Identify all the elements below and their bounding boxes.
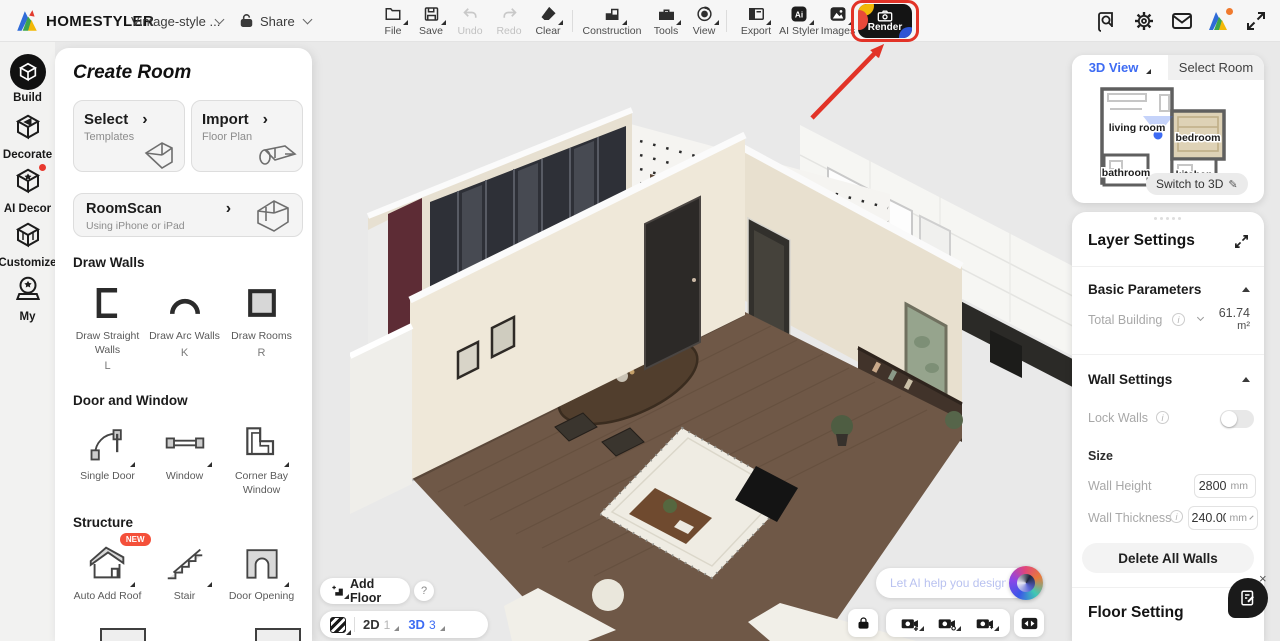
redo-icon: [498, 4, 520, 24]
tab-3d-view[interactable]: 3D View: [1072, 55, 1168, 80]
camera-ai-icon: [976, 616, 995, 631]
build-icon: [10, 54, 46, 90]
images-icon: [827, 4, 849, 24]
delete-all-walls-button[interactable]: Delete All Walls: [1082, 543, 1254, 573]
wall-height-input-box[interactable]: mm: [1194, 474, 1256, 498]
cutoff-item: [100, 628, 146, 641]
chevron-right-icon: ›: [226, 200, 231, 217]
camera-add-button[interactable]: [901, 616, 920, 631]
single-door-icon: [85, 420, 131, 466]
create-room-panel: Create Room Select› Templates Import› Fl…: [55, 48, 312, 641]
room-label-bathroom[interactable]: bathroom: [1102, 167, 1150, 179]
import-floorplan-card[interactable]: Import› Floor Plan: [191, 100, 303, 172]
homestyler-logo-icon[interactable]: [14, 8, 40, 34]
toolbar-save-button[interactable]: Save: [411, 4, 451, 37]
project-name[interactable]: Vintage-style ...: [131, 14, 220, 29]
floor-setting-header[interactable]: Floor Setting: [1088, 604, 1184, 622]
rail-item-decorate[interactable]: Decorate: [0, 112, 55, 161]
lock-view-button[interactable]: [848, 609, 878, 637]
ai-decor-badge: [39, 164, 46, 171]
info-icon[interactable]: i: [1156, 411, 1169, 424]
homestyler-app: HOMESTYLER Vintage-style ... Share File …: [0, 0, 1280, 641]
rail-item-my[interactable]: My: [0, 274, 55, 323]
construction-icon: [601, 4, 623, 24]
camera-settings-button[interactable]: [938, 616, 957, 631]
share-chevron-icon[interactable]: [303, 15, 313, 25]
left-rail: Build Decorate AI Decor Customize M: [0, 42, 55, 641]
settings-gear-icon[interactable]: [1132, 9, 1156, 33]
file-icon: [382, 4, 404, 24]
tab-3d[interactable]: 3D 3: [408, 617, 435, 632]
wall-height-unit: mm: [1231, 480, 1249, 492]
fit-view-icon: [1021, 616, 1038, 631]
close-icon[interactable]: ×: [1259, 571, 1267, 586]
ai-assistant-icon[interactable]: [1009, 566, 1043, 600]
info-icon[interactable]: i: [1172, 313, 1185, 326]
add-floor-button[interactable]: Add Floor: [320, 578, 410, 604]
wall-thickness-unit: mm: [1230, 512, 1248, 524]
add-floor-help-button[interactable]: ?: [414, 581, 434, 601]
room-square-icon: [239, 280, 285, 326]
total-building-unit: m²: [1200, 320, 1250, 332]
hallway-wall: [350, 328, 412, 514]
tool-single-door[interactable]: Single Door: [69, 420, 146, 484]
toolbar-clear-button[interactable]: Clear: [528, 4, 568, 37]
toolbar-redo-button[interactable]: Redo: [489, 4, 529, 37]
arc-wall-icon: [162, 280, 208, 326]
rail-item-customize[interactable]: Customize: [0, 220, 55, 269]
window-icon: [162, 420, 208, 466]
toolbar-ai-styler-button[interactable]: Ai AI Styler: [776, 4, 822, 37]
help-search-icon[interactable]: [1094, 9, 1118, 33]
chevron-right-icon: ›: [142, 111, 147, 128]
panel-title: Create Room: [73, 62, 191, 84]
templates-icon: [138, 135, 180, 169]
eraser-icon: [537, 4, 559, 24]
lock-icon: [856, 615, 871, 631]
tool-door-opening[interactable]: Door Opening: [223, 540, 300, 604]
ai-styler-icon: Ai: [788, 4, 810, 24]
roomscan-house-icon: [248, 195, 296, 233]
view-mode-switcher: 2D 1 3D 3: [320, 611, 488, 638]
tools-icon: [655, 4, 677, 24]
wall-height-input[interactable]: [1183, 479, 1227, 493]
add-floor-icon: [330, 584, 344, 598]
basic-parameters-header[interactable]: Basic Parameters: [1088, 282, 1201, 297]
straight-wall-icon: [85, 280, 131, 326]
fit-view-button[interactable]: [1014, 609, 1044, 637]
wall-settings-header[interactable]: Wall Settings: [1088, 372, 1172, 387]
tool-stair[interactable]: Stair: [146, 540, 223, 604]
rail-item-build[interactable]: Build: [0, 54, 55, 104]
chevron-right-icon: ›: [263, 111, 268, 128]
switch-to-3d-button[interactable]: Switch to 3D ✎: [1146, 173, 1248, 195]
toolbar-view-button[interactable]: View: [684, 4, 724, 37]
rail-item-ai-decor[interactable]: AI Decor: [0, 166, 55, 215]
tool-auto-add-roof[interactable]: NEW Auto Add Roof: [69, 540, 146, 604]
interior-door: [645, 197, 700, 369]
tool-draw-straight-walls[interactable]: Draw Straight Walls L: [69, 280, 146, 372]
view-icon: [693, 4, 715, 24]
notification-dot: [1226, 8, 1233, 15]
collapse-icon[interactable]: [1242, 287, 1250, 292]
thickness-dropdown-icon[interactable]: [1249, 515, 1253, 519]
note-pencil-icon: [1239, 589, 1257, 607]
camera-add-icon: [901, 616, 920, 631]
toolbar-file-button[interactable]: File: [373, 4, 413, 37]
info-icon[interactable]: i: [1170, 510, 1183, 523]
auto-roof-icon: NEW: [85, 540, 131, 586]
section-door-window: Door and Window: [73, 393, 188, 408]
total-building-label: Total Building: [1088, 313, 1162, 327]
camera-ai-button[interactable]: [976, 616, 995, 631]
fullscreen-icon[interactable]: [1244, 9, 1268, 33]
export-icon: [745, 4, 767, 24]
roomscan-card[interactable]: RoomScan› Using iPhone or iPad: [73, 193, 303, 237]
tab-2d[interactable]: 2D 1: [363, 617, 390, 632]
room-label-bedroom[interactable]: bedroom: [1176, 132, 1221, 144]
layer-settings-title: Layer Settings: [1088, 232, 1195, 250]
camera-settings-icon: [938, 616, 957, 631]
toolbar-render-button[interactable]: Render: [858, 4, 912, 38]
drag-handle[interactable]: [1154, 217, 1182, 220]
door-opening-icon: [239, 540, 285, 586]
toolbar-export-button[interactable]: Export: [736, 4, 776, 37]
lock-walls-label: Lock Walls: [1088, 411, 1148, 425]
toolbar-undo-button[interactable]: Undo: [450, 4, 490, 37]
undo-icon: [459, 4, 481, 24]
share-button[interactable]: Share: [260, 14, 295, 29]
save-icon: [420, 4, 442, 24]
lock-walls-toggle[interactable]: [1220, 410, 1254, 428]
mail-icon[interactable]: [1170, 9, 1194, 33]
cutoff-item: [255, 628, 301, 641]
toolbar-separator: [726, 10, 727, 32]
top-bar: HOMESTYLER Vintage-style ... Share File …: [0, 0, 1280, 42]
section-structure: Structure: [73, 515, 133, 530]
tab-dropdown-icon: [1146, 69, 1151, 74]
share-lock-icon: [238, 12, 255, 29]
wall-thickness-input-box[interactable]: mm: [1188, 506, 1258, 530]
layer-settings-panel: Layer Settings Basic Parameters Total Bu…: [1072, 212, 1264, 641]
ai-decor-icon: [13, 166, 43, 201]
wall-thickness-label: Wall Thickness: [1088, 511, 1171, 525]
tool-corner-bay-window[interactable]: Corner Bay Window: [223, 420, 300, 497]
toggle-knob: [1221, 411, 1237, 427]
total-building-value: 61.74: [1200, 306, 1250, 320]
toolbar-tools-button[interactable]: Tools: [646, 4, 686, 37]
tab-select-room[interactable]: Select Room: [1168, 55, 1264, 80]
toolbar-separator: [572, 10, 573, 32]
3d-viewport[interactable]: [350, 90, 1090, 641]
corner-bay-window-icon: [239, 420, 285, 466]
tool-draw-arc-walls[interactable]: Draw Arc Walls K: [146, 280, 223, 359]
decorate-icon: [13, 112, 43, 147]
collapse-icon[interactable]: [1242, 377, 1250, 382]
tool-draw-rooms[interactable]: Draw Rooms R: [223, 280, 300, 359]
expand-panel-icon[interactable]: [1234, 234, 1249, 249]
room-label-living[interactable]: living room: [1109, 122, 1166, 134]
floorplan-roll-icon: [253, 137, 299, 169]
pattern-layer-button[interactable]: [330, 617, 346, 633]
svg-text:Ai: Ai: [795, 10, 803, 19]
pencil-icon: ✎: [1228, 178, 1237, 191]
my-icon: [13, 274, 43, 309]
toolbar-construction-button[interactable]: Construction: [581, 4, 643, 37]
pattern-icon: [330, 617, 346, 633]
camera-tools: [886, 609, 1010, 637]
account-logo-icon[interactable]: [1206, 9, 1232, 35]
wall-height-label: Wall Height: [1088, 479, 1151, 493]
toolbar-images-button[interactable]: Images: [818, 4, 858, 37]
size-label: Size: [1088, 449, 1113, 463]
wall-thickness-input[interactable]: [1192, 511, 1226, 525]
divider: [354, 617, 355, 632]
customize-icon: [13, 220, 43, 255]
section-draw-walls: Draw Walls: [73, 255, 145, 270]
stair-icon: [162, 540, 208, 586]
select-templates-card[interactable]: Select› Templates: [73, 100, 185, 172]
tool-window[interactable]: Window: [146, 420, 223, 484]
render-camera-icon: [877, 9, 893, 22]
